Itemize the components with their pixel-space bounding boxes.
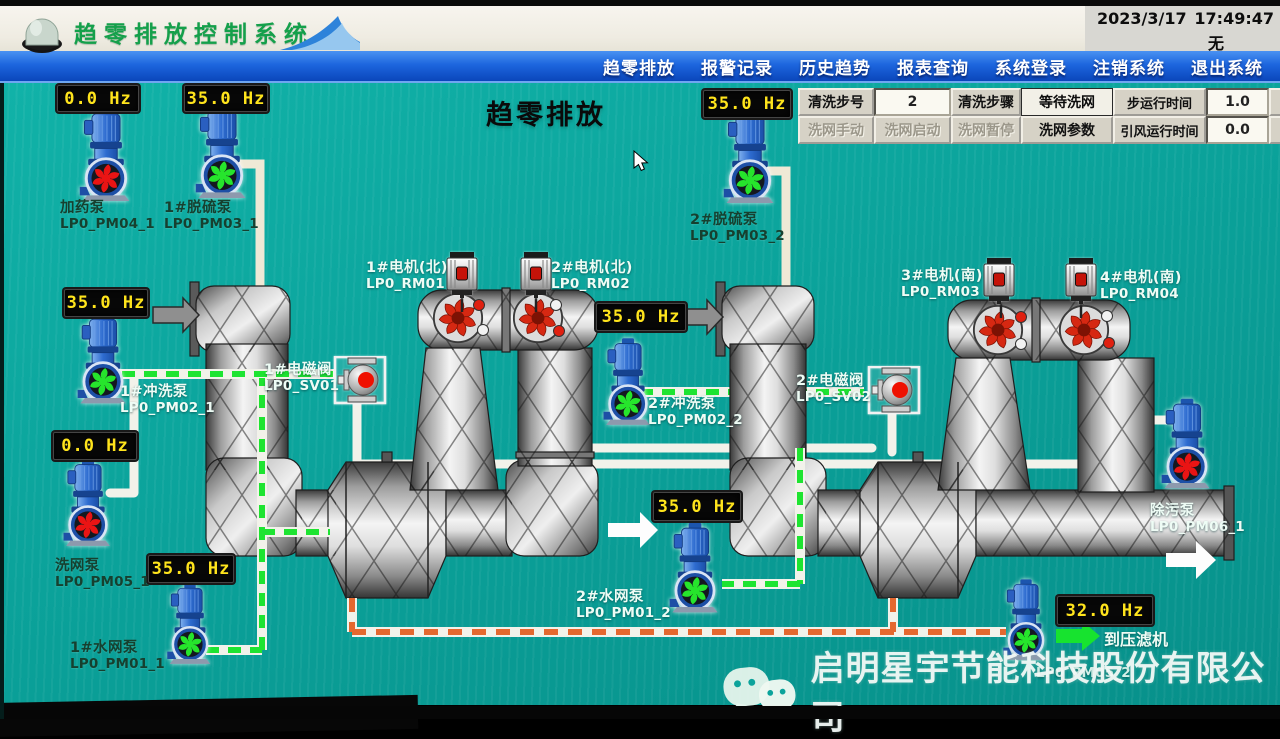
freq-display-washnet: 0.0 Hz: [53, 432, 137, 460]
freq-display-desulf-1: 35.0 Hz: [184, 85, 268, 112]
header-swoosh-decoration: [280, 16, 360, 50]
solenoid-valve-1-icon[interactable]: [332, 356, 388, 410]
fan-time-value: 0.0: [1206, 116, 1269, 144]
label-pump-decontam: 除污泵LP0_PM06_1: [1150, 503, 1245, 536]
step-time-label: 步运行时间: [1113, 88, 1206, 116]
system-title: 趋零排放控制系统: [74, 15, 314, 49]
step-no-value[interactable]: 2: [874, 88, 951, 116]
label-pump-waternet-2: 2#水网泵LP0_PM01_2: [576, 589, 671, 622]
freq-display-dosing: 0.0 Hz: [57, 85, 139, 112]
label-motor-4: 4#电机(南)LP0_RM04: [1100, 270, 1182, 303]
date-text: 2023/3/17: [1097, 9, 1187, 28]
pump-waternet-1[interactable]: [164, 578, 216, 670]
fan-time-label: 引风运行时间: [1113, 116, 1206, 144]
menu-item-report-query[interactable]: 报表查询: [884, 54, 982, 79]
pump-dosing[interactable]: [76, 108, 136, 202]
menu-item-zero-emission[interactable]: 趋零排放: [590, 54, 688, 79]
screen-bezel-top: [0, 0, 1280, 6]
motor-2-icon[interactable]: [519, 252, 553, 298]
motor-1-icon[interactable]: [445, 252, 479, 298]
screen-bezel-bottom: [0, 706, 1280, 719]
menu-item-alarm-record[interactable]: 报警记录: [688, 54, 786, 79]
wash-pause-button[interactable]: 洗网暂停: [951, 116, 1021, 144]
pump-desulf-1[interactable]: [192, 104, 252, 200]
step-name-label: 清洗步骤: [951, 88, 1021, 116]
pump-decontam[interactable]: [1158, 396, 1216, 492]
wash-start-button[interactable]: 洗网启动: [874, 116, 951, 144]
label-pump-flush-2: 2#冲洗泵LP0_PM02_2: [648, 396, 743, 429]
label-motor-3: 3#电机(南)LP0_RM03: [901, 268, 983, 301]
freq-display-flush-2: 35.0 Hz: [596, 303, 686, 331]
label-pump-desulf-1: 1#脱硫泵LP0_PM03_1: [164, 200, 259, 233]
solenoid-valve-2-icon[interactable]: [866, 366, 922, 420]
freq-display-flush-1: 35.0 Hz: [64, 289, 148, 317]
mouse-cursor: [633, 150, 649, 172]
menu-item-history-trend[interactable]: 历史趋势: [786, 54, 884, 79]
pump-desulf-2[interactable]: [720, 108, 780, 206]
label-valve-2: 2#电磁阀LP0_SV02: [796, 373, 871, 406]
fan-time-unit: 分: [1269, 116, 1280, 144]
label-pump-dosing: 加药泵LP0_PM04_1: [60, 200, 155, 233]
freq-display-waternet-1: 35.0 Hz: [148, 555, 234, 583]
main-menubar: 趋零排放 报警记录 历史趋势 报表查询 系统登录 注销系统 退出系统: [0, 51, 1280, 83]
watermark: 启明星宇节能科技股份有限公司: [722, 641, 1280, 739]
pump-waternet-2[interactable]: [666, 520, 724, 616]
step-no-label: 清洗步号: [798, 88, 874, 116]
menu-item-system-login[interactable]: 系统登录: [982, 54, 1080, 79]
menu-item-exit-system[interactable]: 退出系统: [1178, 54, 1276, 79]
label-motor-2: 2#电机(北)LP0_RM02: [551, 260, 633, 293]
wash-control-panel: 清洗步号 2 清洗步骤 等待洗网 步运行时间 1.0 分 洗网手动 洗网启动 洗…: [798, 88, 1280, 144]
step-name-value: 等待洗网: [1021, 88, 1113, 116]
label-motor-1: 1#电机(北)LP0_RM01: [366, 260, 448, 293]
wash-params-button[interactable]: 洗网参数: [1021, 116, 1113, 144]
pump-washnet[interactable]: [60, 456, 116, 550]
label-pump-washnet: 洗网泵LP0_PM05_1: [55, 558, 150, 591]
step-time-value: 1.0: [1206, 88, 1269, 116]
screen-title: 趋零排放: [486, 93, 606, 132]
motor-3-icon[interactable]: [982, 258, 1016, 304]
step-time-unit: 分: [1269, 88, 1280, 116]
wash-manual-button[interactable]: 洗网手动: [798, 116, 874, 144]
freq-display-desulf-2: 35.0 Hz: [703, 90, 791, 118]
time-text: 17:49:47: [1194, 9, 1274, 28]
screen-bezel-left: [0, 83, 4, 719]
system-logo-icon: [20, 8, 64, 54]
alarm-status-text: 无: [1085, 30, 1280, 54]
menu-item-logout[interactable]: 注销系统: [1080, 54, 1178, 79]
watermark-text: 启明星宇节能科技股份有限公司: [811, 641, 1280, 739]
label-pump-waternet-1: 1#水网泵LP0_PM01_1: [70, 640, 165, 673]
motor-4-icon[interactable]: [1064, 258, 1098, 304]
label-valve-1: 1#电磁阀LP0_SV01: [264, 362, 339, 395]
label-pump-flush-1: 1#冲洗泵LP0_PM02_1: [120, 384, 215, 417]
freq-display-washnet-2: 32.0 Hz: [1057, 596, 1153, 625]
label-pump-desulf-2: 2#脱硫泵LP0_PM03_2: [690, 212, 785, 245]
datetime-panel: 2023/3/17 17:49:47 无: [1085, 5, 1280, 51]
freq-display-waternet-2: 35.0 Hz: [653, 492, 741, 521]
